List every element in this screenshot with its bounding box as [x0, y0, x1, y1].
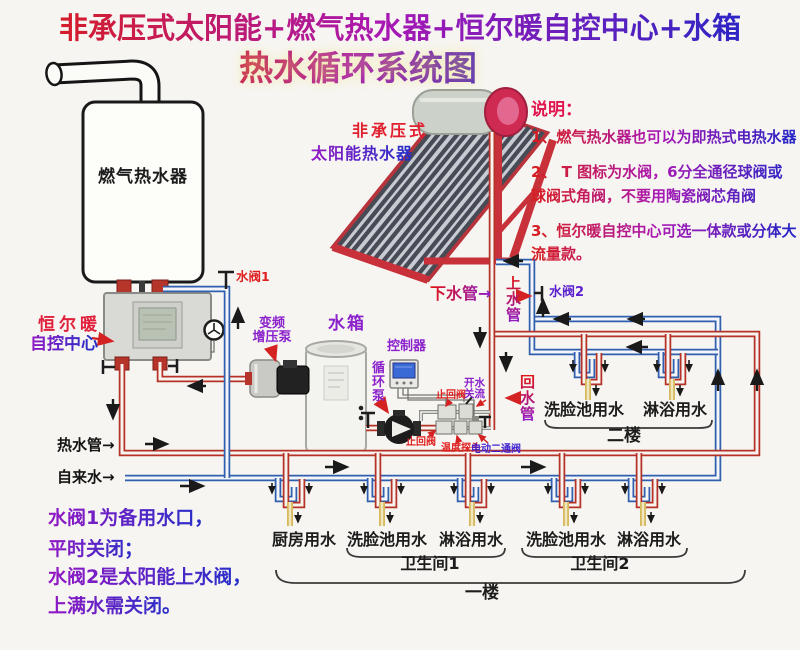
- solar-tank: [413, 88, 527, 136]
- shutoff-valve-icon: [459, 404, 473, 419]
- floor1-fixture1-label: 厨房用水: [272, 531, 336, 549]
- diagram-canvas: 非承压式太阳能+燃气热水器+恒尔暖自控中心+水箱 热水循环系统图 说明： 1、燃…: [0, 0, 800, 650]
- control-center-box: [104, 293, 224, 370]
- note-item: 2、 T 图标为水阀，6分全通径球阀或球阀式角阀，不要用陶瓷阀芯角阀: [531, 161, 797, 208]
- fixture-drop: [454, 453, 491, 526]
- hot-pipe-label: 热水管→: [57, 437, 115, 454]
- footnote-line4: 上满水需关闭。: [48, 596, 181, 618]
- solar-collector: [333, 88, 553, 280]
- up-pipe-label: 上水管: [506, 276, 522, 324]
- footnote-line1: 水阀1为备用水口，: [48, 508, 213, 530]
- check-valve-bottom-icon: [436, 421, 452, 434]
- check-valve-top-icon: [438, 405, 456, 419]
- valve1-label: 水阀1: [236, 270, 270, 284]
- circulation-pump-label: 循环泵: [372, 362, 386, 403]
- fixture-drop: [364, 453, 401, 526]
- fixture-drop: [657, 334, 689, 400]
- water-tank-label: 水箱: [328, 315, 366, 335]
- tap-water-label: 自来水→: [57, 469, 115, 486]
- fixture-drop: [573, 334, 605, 400]
- floor2-fixture2-label: 淋浴用水: [643, 401, 707, 419]
- controller-box: [390, 360, 418, 388]
- tank-label-sticker: [324, 366, 348, 400]
- check-valve-top-label: 止回阀: [436, 390, 466, 402]
- down-pipe-label: 下水管→: [430, 285, 491, 303]
- bathroom1-label: 卫生间1: [400, 555, 459, 573]
- footnote-line2: 平时关闭；: [48, 539, 143, 561]
- bathroom2-label: 卫生间2: [570, 555, 629, 573]
- fixture-drop: [625, 453, 662, 526]
- booster-pump: [245, 360, 309, 397]
- booster-pump-label-line2: 增压泵: [248, 331, 296, 346]
- floor2-fixture1-label: 洗脸池用水: [544, 401, 624, 419]
- solar-label-line2: 太阳能热水器: [311, 145, 413, 163]
- main-title: 非承压式太阳能+燃气热水器+恒尔暖自控中心+水箱: [30, 12, 770, 45]
- controller-label: 控制器: [387, 340, 426, 355]
- floor2-label: 二楼: [607, 427, 641, 447]
- control-center-label-line1: 恒尔暖: [38, 316, 101, 336]
- water-tank: [306, 341, 366, 453]
- floor1-fixture5-label: 淋浴用水: [617, 531, 681, 549]
- check-valve-bottom-label: 止回阀: [406, 437, 436, 449]
- gas-heater-label: 燃气热水器: [93, 168, 193, 188]
- controller-screen: [393, 363, 415, 378]
- control-center-label-line2: 自控中心: [30, 335, 98, 355]
- motor-valve-icon: [469, 421, 482, 434]
- notes-heading: 说明：: [531, 95, 797, 120]
- floor2-fixtures: [573, 334, 689, 400]
- temp-probe-icon: [454, 421, 467, 434]
- shutoff-label-line2: 关流: [464, 388, 485, 400]
- control-center-display: [139, 308, 176, 340]
- note-item: 3、恒尔暖自控中心可选一体款或分体大流量款。: [531, 220, 797, 267]
- floor1-fixture4-label: 洗脸池用水: [526, 531, 606, 549]
- fixture-drop: [548, 453, 585, 526]
- floor1-label: 一楼: [465, 584, 499, 604]
- fixture-drop: [272, 453, 309, 526]
- valve2-label: 水阀2: [549, 286, 584, 301]
- footnote-line3: 水阀2是太阳能上水阀，: [48, 567, 251, 589]
- solar-label-line1: 非承压式: [352, 122, 428, 140]
- motor-valve-label: 电动二通阀: [471, 444, 521, 456]
- legend-notes: 说明： 1、燃气热水器也可以为即热式电热水器 2、 T 图标为水阀，6分全通径球…: [531, 95, 797, 278]
- floor1-fixtures: [272, 453, 662, 526]
- floor1-fixture3-label: 淋浴用水: [439, 531, 503, 549]
- floor1-fixture2-label: 洗脸池用水: [347, 531, 427, 549]
- sub-title: 热水循环系统图: [178, 50, 538, 89]
- return-pipe-label: 回水管: [520, 375, 536, 423]
- note-item: 1、燃气热水器也可以为即热式电热水器: [531, 126, 797, 149]
